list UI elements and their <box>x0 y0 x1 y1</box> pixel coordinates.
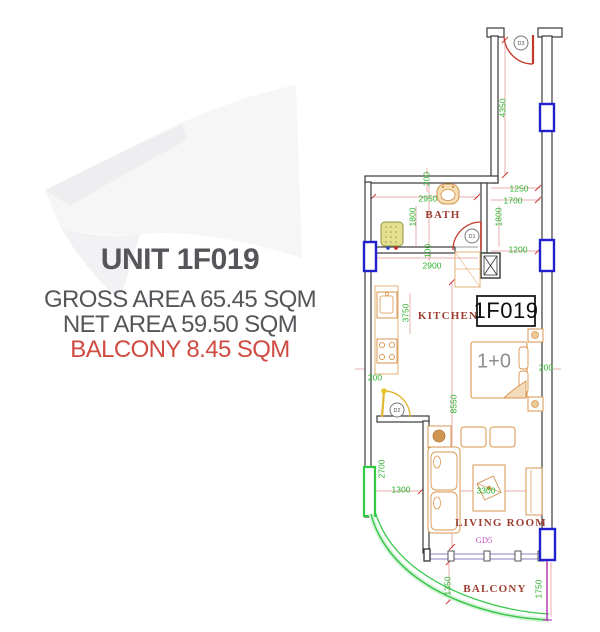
tv-unit-icon <box>526 468 542 515</box>
dim-1700: 1700 <box>504 195 523 205</box>
dim-8550: 8550 <box>448 394 458 413</box>
dim-1350: 1350 <box>442 576 452 595</box>
door-tag-d1-label: D1 <box>468 234 475 240</box>
dim-1300: 1300 <box>392 484 411 494</box>
service-shaft-icon <box>481 253 500 278</box>
dim-200-right: 200 <box>539 362 553 372</box>
dim-1800-left: 1800 <box>407 207 417 226</box>
bed-type-label: 1+0 <box>477 350 511 372</box>
dim-200-left: 200 <box>368 372 382 382</box>
window-icon-left-bath <box>364 242 376 271</box>
hall-partition-wall-h <box>377 416 429 422</box>
window-icon-right-mid <box>540 240 554 271</box>
dim-1200: 1200 <box>509 244 528 254</box>
balcony-area-line: BALCONY 8.45 SQM <box>26 337 334 362</box>
cold-valve-icon <box>386 246 390 250</box>
window-icon-left-hall <box>364 467 375 516</box>
dim-2700: 2700 <box>376 459 386 478</box>
bath-bottom-wall <box>371 247 455 253</box>
net-area-line: NET AREA 59.50 SQM <box>26 312 334 337</box>
wardrobe-icon <box>455 252 480 287</box>
washing-machine-icon <box>381 222 403 250</box>
window-icon-right-top <box>540 104 554 131</box>
entry-door: D3 <box>504 35 533 64</box>
stove-icon <box>377 339 397 363</box>
bath-sink-icon <box>437 184 459 204</box>
dim-4350: 4350 <box>497 98 507 117</box>
dim-1750: 1750 <box>533 579 543 598</box>
living-room-label: LIVING ROOM <box>455 517 547 529</box>
gross-area-line: GROSS AREA 65.45 SQM <box>26 287 334 312</box>
unit-badge-label: 1F019 <box>474 298 539 323</box>
nightstand-icon-top <box>528 329 543 342</box>
plant-table-icon <box>428 426 451 447</box>
dim-2950: 2950 <box>419 193 438 203</box>
nightstand-icon-bottom <box>528 397 543 411</box>
bath-right-wall <box>481 183 487 253</box>
dim-1250: 1250 <box>510 183 529 193</box>
kitchen-room-label: KITCHEN <box>418 310 478 322</box>
window-icon-right-bottom <box>540 529 555 560</box>
dim-3750: 3750 <box>400 303 410 322</box>
armchair-icon-1 <box>461 427 486 447</box>
dim-200-top: 200 <box>421 172 431 186</box>
top-wall <box>365 176 498 183</box>
bath-room-label: BATH <box>425 209 460 221</box>
glass-door-label: GD5 <box>476 535 493 545</box>
bed-icon: 1+0 <box>471 342 528 398</box>
balcony-room-label: BALCONY <box>463 583 526 595</box>
armchair-icon-2 <box>490 427 515 447</box>
kitchen-counter-icon <box>375 286 398 374</box>
hot-valve-icon <box>394 246 398 250</box>
hall-door: D2 <box>381 388 410 417</box>
door-tag-d2-label: D2 <box>393 408 400 414</box>
glass-door-track <box>424 549 545 561</box>
dim-100: 100 <box>422 244 432 258</box>
door-hinge-dot <box>381 388 387 394</box>
bath-door: D1 <box>453 222 481 250</box>
floorplan-page: D3 D1 D2 <box>0 0 600 632</box>
unit-title: UNIT 1F019 <box>26 243 334 277</box>
door-tag-d3-label: D3 <box>517 41 524 47</box>
dim-3300: 3300 <box>477 485 496 495</box>
dim-2900: 2900 <box>423 260 442 270</box>
title-block: UNIT 1F019 GROSS AREA 65.45 SQM NET AREA… <box>26 243 334 362</box>
unit-badge: 1F019 <box>474 296 539 326</box>
dim-1800-right: 1800 <box>493 207 503 226</box>
